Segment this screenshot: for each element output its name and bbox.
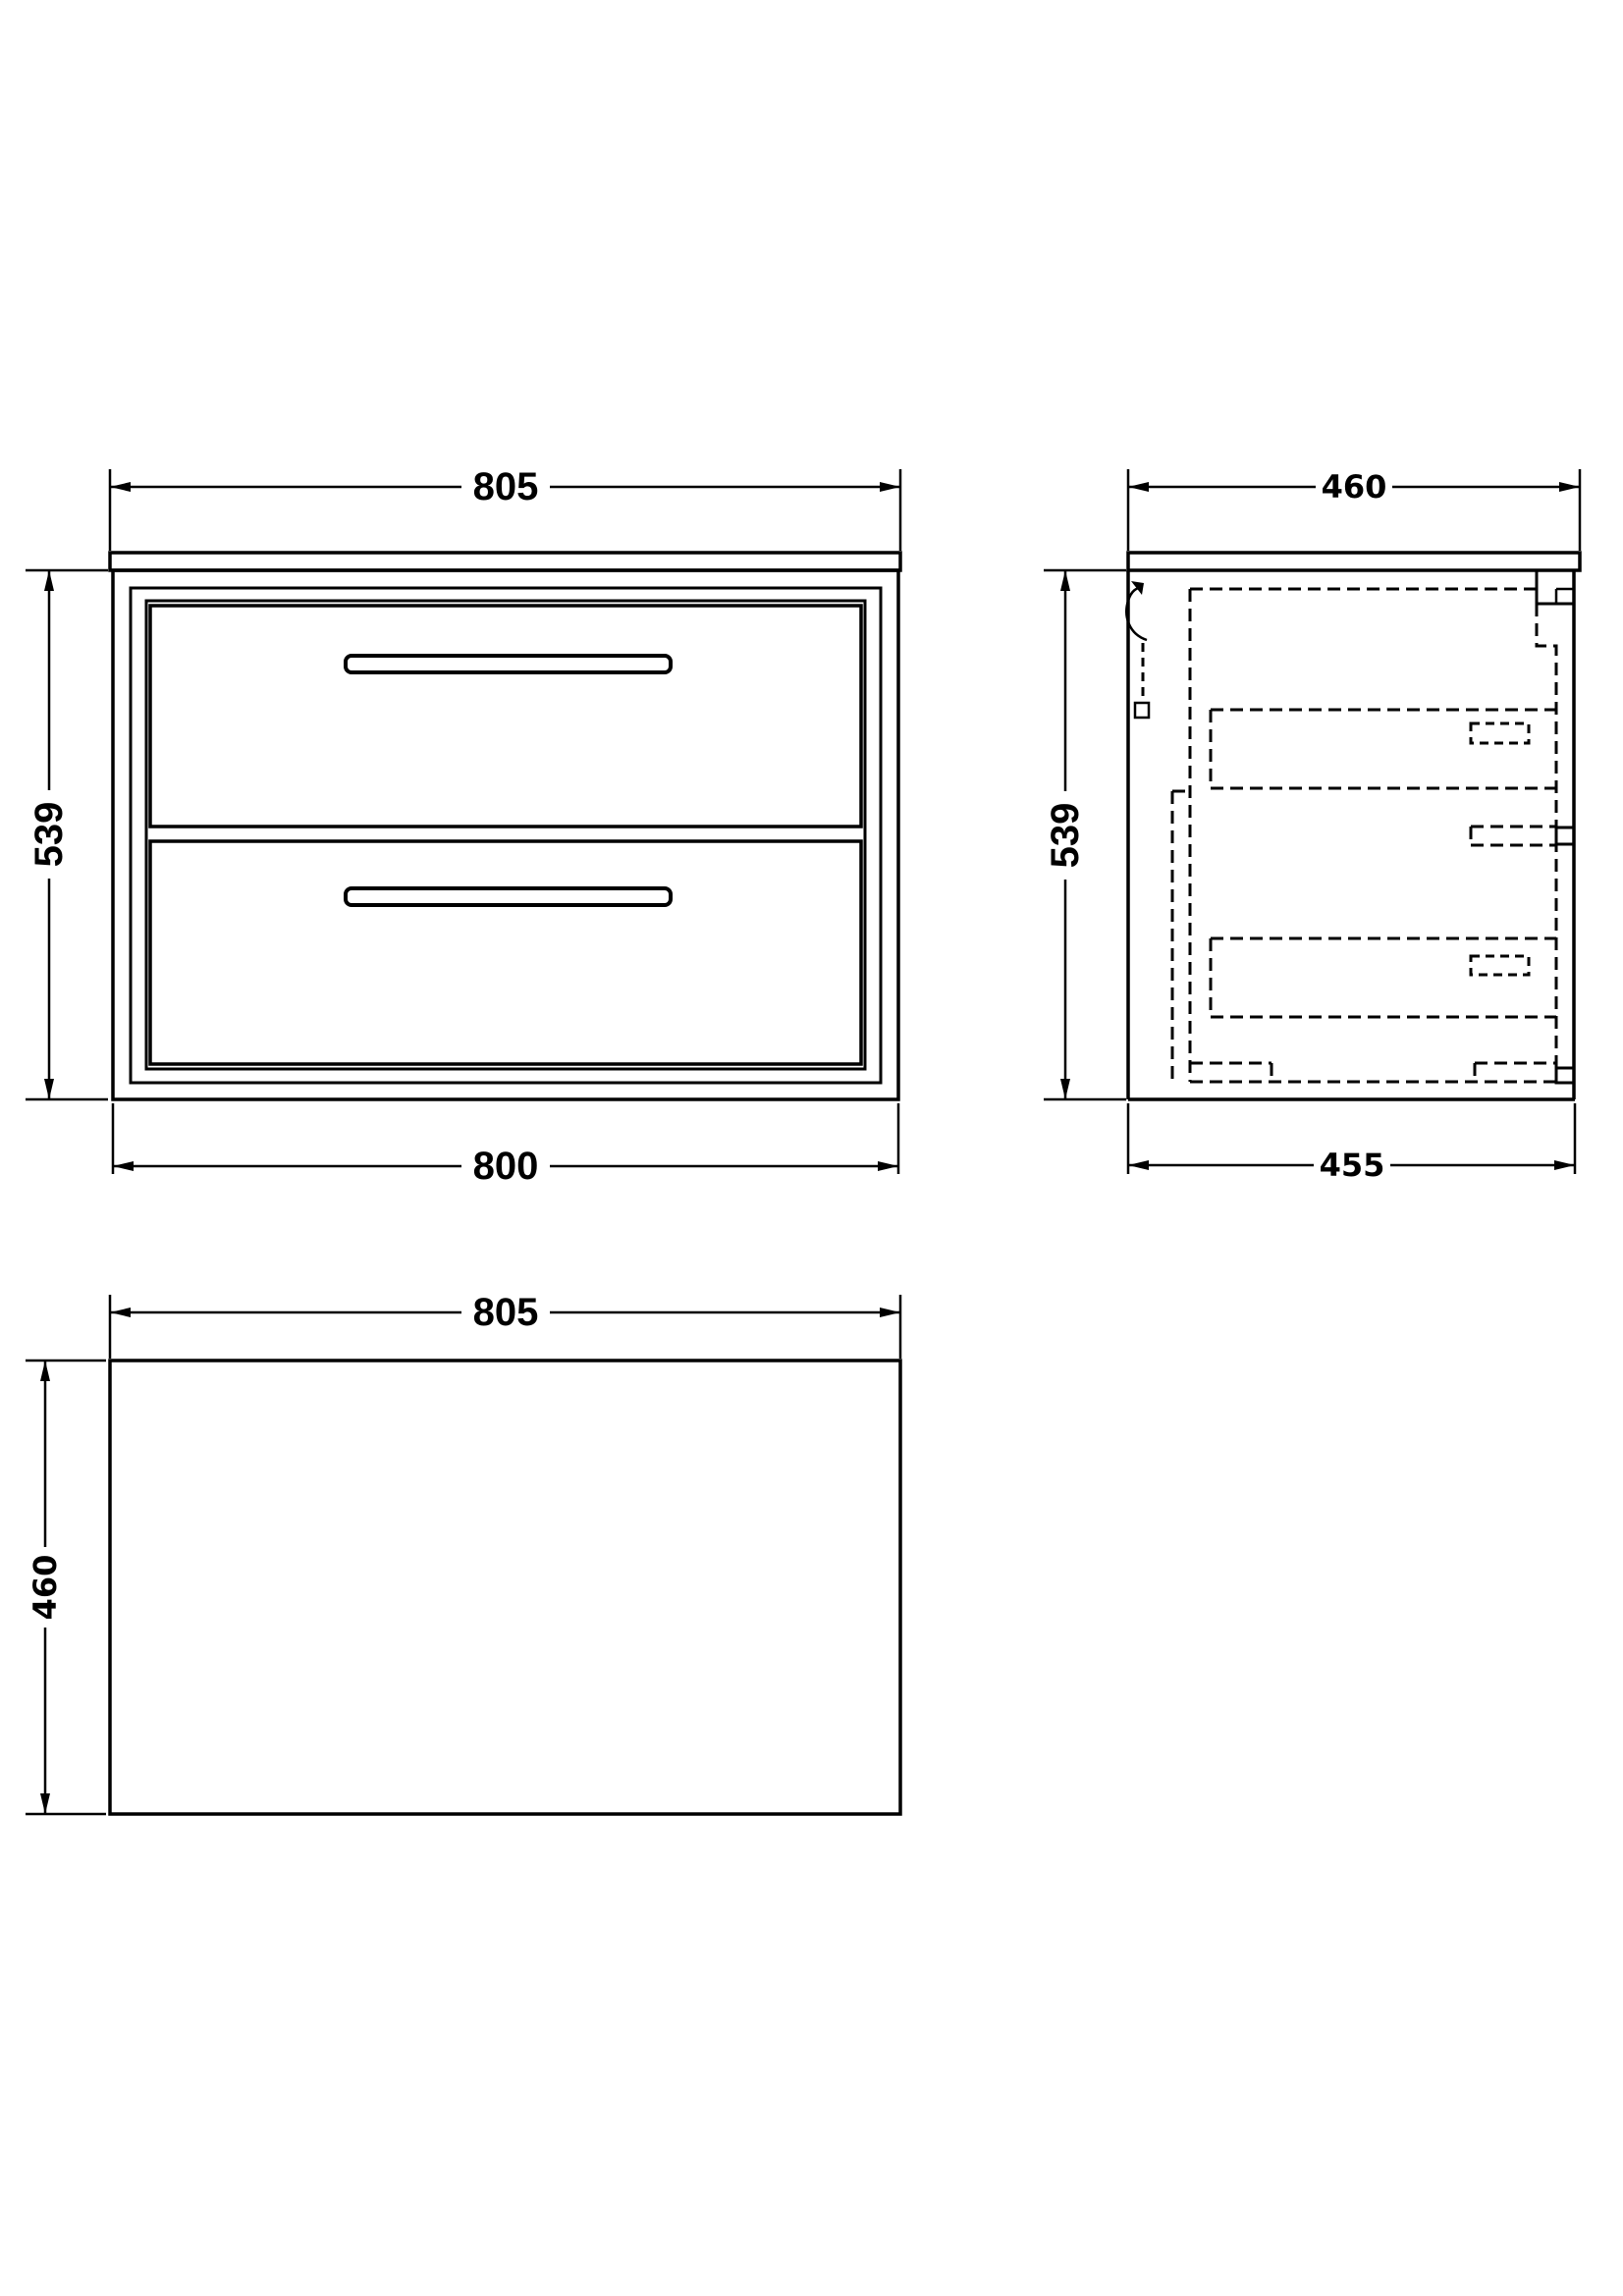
- side-dim-depth-top-label: 460: [1322, 468, 1387, 506]
- side-drawer-box-1: [1211, 710, 1556, 788]
- front-dim-height: 539: [26, 570, 108, 1099]
- drawer-1-handle: [346, 656, 671, 672]
- plan-dim-depth: 460: [26, 1361, 106, 1814]
- side-dim-height-label: 539: [1044, 803, 1087, 869]
- front-inner-frame: [131, 588, 881, 1083]
- vanity-unit-dimension-drawing: 805 539 800: [0, 0, 1623, 2296]
- front-dim-width-bottom-label: 800: [473, 1145, 539, 1188]
- front-drawer-1: [150, 606, 861, 827]
- plan-dim-width: 805: [110, 1291, 900, 1359]
- front-cabinet-outline: [113, 570, 898, 1099]
- plan-dim-width-label: 805: [473, 1291, 539, 1334]
- side-cabinet-outline: [1128, 570, 1575, 1099]
- side-dim-depth-bottom: 455: [1128, 1103, 1575, 1184]
- front-view: 805 539 800: [26, 465, 900, 1188]
- side-drawer-box-2: [1211, 938, 1556, 1017]
- side-worktop: [1128, 553, 1580, 570]
- side-dim-depth-top: 460: [1128, 468, 1580, 551]
- front-dim-height-label: 539: [27, 802, 71, 868]
- side-mid-rail-end: [1556, 828, 1574, 844]
- front-dim-width-top-label: 805: [473, 465, 539, 508]
- side-view: 460 539 455: [1044, 468, 1580, 1184]
- technical-drawing-page: 805 539 800: [0, 0, 1623, 2296]
- side-hidden-detail: [1172, 589, 1556, 1082]
- front-worktop: [110, 553, 900, 570]
- side-bottom-rail-end: [1556, 1068, 1574, 1083]
- front-drawer-2: [150, 841, 861, 1064]
- side-bottom-rail: [1475, 1063, 1556, 1082]
- side-front-top-rail: [1537, 570, 1574, 604]
- plan-worktop-outline: [110, 1361, 900, 1814]
- side-foot-block: [1190, 1063, 1271, 1082]
- front-dim-width-bottom: 800: [113, 1103, 898, 1188]
- side-dim-depth-bottom-label: 455: [1320, 1147, 1385, 1184]
- front-dim-width-top: 805: [110, 465, 900, 551]
- drawer-2-handle: [346, 888, 671, 905]
- side-dim-height: 539: [1044, 570, 1126, 1099]
- side-mid-rail: [1471, 827, 1556, 845]
- plan-dim-depth-label: 460: [27, 1555, 64, 1621]
- plan-view: 805 460: [26, 1291, 900, 1814]
